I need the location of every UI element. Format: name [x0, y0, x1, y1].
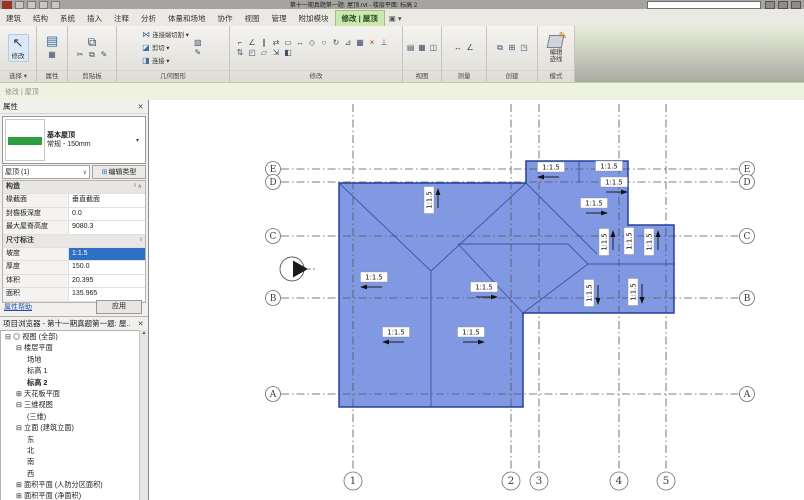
slope-label[interactable]: 1:1.5 — [600, 233, 608, 250]
tab-8[interactable]: 视图 — [239, 11, 266, 26]
grid-bubble-label-B: B — [270, 294, 277, 304]
panel-view: ▤▦◫ 视图 — [403, 26, 442, 82]
create-icon-0[interactable]: ⧉ — [494, 43, 506, 53]
browser-scrollbar[interactable]: ▲ — [139, 330, 148, 500]
panel-label-select[interactable]: 选择 ▾ — [0, 70, 36, 82]
panel-create: ⧉⊞◳ 创建 — [487, 26, 538, 82]
edit-footprint-button[interactable]: 编辑 迹线 — [550, 49, 563, 63]
search-input[interactable] — [647, 1, 761, 9]
clipboard-small-icons: ✂⧉✎ — [74, 50, 110, 60]
geometry-button-1[interactable]: ◪ 剪切 ▾ — [142, 42, 189, 55]
slope-label[interactable]: 1:1.5 — [365, 274, 382, 282]
slope-label[interactable]: 1:1.5 — [645, 233, 653, 250]
type-selector[interactable]: 基本屋顶 常规 - 150mm ▾ — [2, 116, 146, 164]
modify-icon-9[interactable]: ⊿ — [342, 38, 354, 48]
properties-title: 属性 — [3, 101, 136, 112]
type-desc: 常规 - 150mm — [47, 140, 136, 149]
modify-icon-0[interactable]: ⌐ — [234, 38, 246, 48]
modify-icon-10[interactable]: ▦ — [354, 38, 366, 48]
modify-icon-3[interactable]: ⇄ — [270, 38, 282, 48]
properties-close-icon[interactable]: ✕ — [136, 103, 145, 111]
clipboard-icon-2[interactable]: ✎ — [98, 50, 110, 60]
modify-icon-11[interactable]: × — [366, 38, 378, 48]
slope-label[interactable]: 1:1.5 — [625, 232, 633, 249]
modify-icon-15[interactable]: ▱ — [258, 48, 270, 58]
prop-value[interactable]: 20.395 — [69, 275, 145, 287]
slope-label[interactable]: 1:1.5 — [585, 200, 602, 208]
panel-label-clipboard[interactable]: 剪贴板 — [68, 70, 116, 82]
modify-icon-16[interactable]: ⇲ — [270, 48, 282, 58]
measure-icon-1[interactable]: ∠ — [464, 43, 476, 53]
clipboard-icon-0[interactable]: ✂ — [74, 50, 86, 60]
view-icon-0[interactable]: ▤ — [405, 43, 416, 53]
modify-icon-13[interactable]: ⇅ — [234, 48, 246, 58]
tree-item-7[interactable]: (三维) — [1, 411, 147, 422]
tab-contextual-modify-roof[interactable]: 修改 | 屋顶 — [335, 10, 385, 26]
prop-row-椽截面[interactable]: 椽截面垂直截面 — [3, 194, 145, 207]
tree-item-9[interactable]: 东 — [1, 434, 147, 445]
grid-bubble-label-4: 4 — [616, 475, 623, 487]
create-icon-1[interactable]: ⊞ — [506, 43, 518, 53]
modify-button[interactable]: ↖ 修改 — [8, 34, 29, 62]
prop-row-最大屋脊高度[interactable]: 最大屋脊高度9080.3 — [3, 221, 145, 234]
grid-bubble-label-D: D — [269, 178, 276, 188]
app-logo-icon[interactable] — [2, 1, 12, 9]
modify-icon-12[interactable]: ⊥ — [378, 38, 390, 48]
type-properties-icon[interactable]: ▦ — [46, 50, 58, 60]
panel-label-create[interactable]: 创建 — [487, 70, 537, 82]
modify-icon-7[interactable]: ○ — [318, 38, 330, 48]
modify-icon-4[interactable]: ▭ — [282, 38, 294, 48]
tree-item-5[interactable]: ⊞ 天花板平面 — [1, 388, 147, 399]
measure-icon-0[interactable]: ↔ — [452, 43, 464, 53]
tab-expander-icon[interactable]: ▣ ▾ — [385, 11, 406, 26]
combo-arrow-icon: ∨ — [83, 169, 87, 176]
section-header-0[interactable]: 构造² ∧ — [3, 181, 145, 194]
modify-icon-8[interactable]: ↻ — [330, 38, 342, 48]
slope-label[interactable]: 1:1.5 — [475, 284, 492, 292]
tree-item-12[interactable]: 西 — [1, 468, 147, 479]
print-icon[interactable] — [51, 1, 60, 9]
prop-row-厚度[interactable]: 厚度150.0 — [3, 261, 145, 274]
panel-label-geometry[interactable]: 几何图形 — [117, 70, 229, 82]
grid-bubble-label-C: C — [744, 232, 751, 242]
panel-label-properties[interactable]: 属性 — [37, 70, 67, 82]
geometry-button-2[interactable]: ◨ 连接 ▾ — [142, 55, 189, 68]
tab-5[interactable]: 分析 — [135, 11, 162, 26]
grid-bubble-label-A: A — [269, 390, 277, 400]
grid-bubble-label-B: B — [744, 294, 751, 304]
slope-label[interactable]: 1:1.5 — [629, 283, 637, 300]
grid-bubble-label-C: C — [270, 232, 277, 242]
prop-row-体积[interactable]: 体积20.395 — [3, 275, 145, 288]
project-browser: 项目浏览器 - 第十一期真题第一题: 屋.. ✕ ⊟ ◎ 视图 (全部)⊟ 楼层… — [0, 317, 148, 500]
panel-measure: ↔∠ 测量 — [442, 26, 487, 82]
prop-row-坡度[interactable]: 坡度1:1.5 — [3, 248, 145, 261]
browser-tree: ⊟ ◎ 视图 (全部)⊟ 楼层平面场地标高 1标高 2⊞ 天花板平面⊟ 三维视图… — [0, 330, 148, 500]
save-icon[interactable] — [15, 1, 24, 9]
type-name: 基本屋顶 — [47, 131, 136, 140]
properties-table: 构造² ∧椽截面垂直截面封檐板深度0.0最大屋脊高度9080.3尺寸标注²坡度1… — [2, 180, 146, 303]
prop-row-封檐板深度[interactable]: 封檐板深度0.0 — [3, 208, 145, 221]
modify-icon-6[interactable]: ◇ — [306, 38, 318, 48]
help-icon[interactable] — [778, 1, 788, 9]
grid-bubble-label-3: 3 — [536, 475, 543, 487]
panel-label-view[interactable]: 视图 — [403, 70, 441, 82]
grid-bubble-label-1: 1 — [350, 475, 357, 487]
tree-item-3[interactable]: 标高 1 — [1, 365, 147, 376]
properties-palette: 属性 ✕ 基本屋顶 常规 - 150mm ▾ 屋顶 (1) ∨ ⊞ 编辑类型 — [0, 100, 148, 317]
grid-bubble-label-2: 2 — [508, 475, 515, 487]
panel-mode: ✎ 编辑 迹线 模式 — [538, 26, 575, 82]
prop-value[interactable]: 1:1.5 — [69, 248, 145, 260]
tree-item-1[interactable]: ⊟ 楼层平面 — [1, 342, 147, 353]
panel-modify: ⌐∠∥⇄▭↔◇○↻⊿▦×⊥⇅◰▱⇲◧ 修改 — [230, 26, 403, 82]
cursor-icon: ↖ — [13, 36, 24, 50]
prop-value[interactable]: 150.0 — [69, 261, 145, 273]
slope-label[interactable]: 1:1.5 — [600, 163, 617, 171]
grid-bubble-label-A: A — [743, 390, 751, 400]
modify-icon-2[interactable]: ∥ — [258, 38, 270, 48]
browser-title: 项目浏览器 - 第十一期真题第一题: 屋.. — [3, 318, 136, 329]
drawing-area[interactable]: 12345EEDDCCBBAA1:1.51:1.51:1.51:1.51:1.5… — [148, 100, 804, 500]
geometry-icon-2: ◨ — [142, 56, 152, 65]
modify-icon-5[interactable]: ↔ — [294, 38, 306, 48]
tab-2[interactable]: 系统 — [54, 11, 81, 26]
modify-tools: ⌐∠∥⇄▭↔◇○↻⊿▦×⊥⇅◰▱⇲◧ — [234, 38, 398, 58]
sidebar: 属性 ✕ 基本屋顶 常规 - 150mm ▾ 屋顶 (1) ∨ ⊞ 编辑类型 — [0, 100, 148, 500]
browser-close-icon[interactable]: ✕ — [136, 320, 145, 328]
scroll-up-icon[interactable]: ▲ — [142, 330, 147, 336]
type-preview — [5, 119, 45, 161]
tab-9[interactable]: 管理 — [266, 11, 293, 26]
tab-1[interactable]: 结构 — [27, 11, 54, 26]
tree-item-13[interactable]: ⊞ 面积平面 (人防分区面积) — [1, 479, 147, 490]
tree-item-10[interactable]: 北 — [1, 445, 147, 456]
slope-label[interactable]: 1:1.5 — [387, 329, 404, 337]
geometry-icon-0: ⋈ — [142, 30, 152, 39]
prop-value[interactable]: 垂直截面 — [69, 194, 145, 206]
minimize-icon[interactable] — [791, 1, 801, 9]
redo-icon[interactable] — [39, 1, 48, 9]
tab-4[interactable]: 注释 — [108, 11, 135, 26]
options-bar: 修改 | 屋顶 — [0, 82, 804, 102]
apply-button[interactable]: 应用 — [96, 300, 142, 314]
ribbon-tab-bar: 建筑结构系统插入注释分析体量和场地协作视图管理附加模块修改 | 屋顶▣ ▾ — [0, 9, 804, 27]
tree-item-6[interactable]: ⊟ 三维视图 — [1, 399, 147, 410]
panel-properties: ▤ ▦ 属性 — [37, 26, 68, 82]
paste-icon[interactable]: ⧉ — [86, 37, 98, 50]
create-icon-2[interactable]: ◳ — [518, 43, 530, 53]
panel-label-mode[interactable]: 模式 — [538, 70, 574, 82]
window-title: 第十一期真题第一题: 屋顶.rvt - 楼层平面: 标高 2 — [60, 0, 647, 9]
tree-item-11[interactable]: 南 — [1, 456, 147, 467]
properties-palette-icon[interactable]: ▤ — [46, 36, 58, 50]
grid-bubble-label-E: E — [744, 165, 751, 175]
tree-item-0[interactable]: ⊟ ◎ 视图 (全部) — [1, 331, 147, 342]
ribbon: ↖ 修改 选择 ▾ ▤ ▦ 属性 ⧉ ✂⧉✎ 剪贴板 ⋈ 连接端切割 ▾◪ 剪切… — [0, 26, 804, 82]
options-bar-label: 修改 | 屋顶 — [5, 87, 39, 97]
slope-label[interactable]: 1:1.5 — [585, 284, 593, 301]
properties-help-link[interactable]: 属性帮助 — [4, 302, 32, 312]
clipboard-icon-1[interactable]: ⧉ — [86, 50, 98, 60]
grid-bubble-label-D: D — [743, 178, 750, 188]
geometry-buttons: ⋈ 连接端切割 ▾◪ 剪切 ▾◨ 连接 ▾ — [142, 29, 189, 68]
view-icon-2[interactable]: ◫ — [428, 43, 439, 53]
signin-icon[interactable] — [765, 1, 775, 9]
panel-clipboard: ⧉ ✂⧉✎ 剪贴板 — [68, 26, 117, 82]
tab-10[interactable]: 附加模块 — [293, 11, 335, 26]
ribbon-empty-area — [575, 26, 804, 82]
view-icon-1[interactable]: ▦ — [416, 43, 427, 53]
tab-3[interactable]: 插入 — [81, 11, 108, 26]
panel-label-measure[interactable]: 测量 — [442, 70, 486, 82]
grid-bubble-label-5: 5 — [663, 475, 670, 487]
tree-item-4[interactable]: 标高 2 — [1, 377, 147, 388]
modify-icon-1[interactable]: ∠ — [246, 38, 258, 48]
section-header-1[interactable]: 尺寸标注² — [3, 235, 145, 248]
roof-selected[interactable] — [339, 161, 674, 407]
tab-6[interactable]: 体量和场地 — [162, 11, 212, 26]
tree-item-14[interactable]: ⊞ 面积平面 (净面积) — [1, 490, 147, 500]
slope-label[interactable]: 1:1.5 — [462, 329, 479, 337]
grid-bubble-label-E: E — [270, 165, 277, 175]
tree-item-2[interactable]: 场地 — [1, 354, 147, 365]
modify-icon-14[interactable]: ◰ — [246, 48, 258, 58]
roof-plan-view: 12345EEDDCCBBAA1:1.51:1.51:1.51:1.51:1.5… — [149, 100, 804, 500]
tab-0[interactable]: 建筑 — [0, 11, 27, 26]
slope-label[interactable]: 1:1.5 — [605, 179, 622, 187]
title-bar: 第十一期真题第一题: 屋顶.rvt - 楼层平面: 标高 2 — [0, 0, 804, 9]
paint-icon[interactable]: ▧ — [192, 38, 204, 48]
slope-label[interactable]: 1:1.5 — [542, 164, 559, 172]
modify-icon-17[interactable]: ◧ — [282, 48, 294, 58]
tree-item-8[interactable]: ⊟ 立面 (建筑立面) — [1, 422, 147, 433]
undo-icon[interactable] — [27, 1, 36, 9]
edit-type-button[interactable]: ⊞ 编辑类型 — [92, 165, 146, 179]
prop-value[interactable]: 9080.3 — [69, 221, 145, 233]
geometry-button-0[interactable]: ⋈ 连接端切割 ▾ — [142, 29, 189, 42]
edit-type-icon: ⊞ — [102, 168, 108, 176]
element-filter-combo[interactable]: 屋顶 (1) ∨ — [2, 165, 90, 179]
type-dropdown-icon[interactable]: ▾ — [136, 137, 145, 144]
tab-7[interactable]: 协作 — [212, 11, 239, 26]
slope-label[interactable]: 1:1.5 — [425, 191, 433, 208]
panel-select: ↖ 修改 选择 ▾ — [0, 26, 37, 82]
geometry-icon-1: ◪ — [142, 43, 152, 52]
demolish-icon[interactable]: ✎ — [192, 48, 204, 58]
edit-footprint-icon: ✎ — [547, 33, 565, 49]
revit-window: 第十一期真题第一题: 屋顶.rvt - 楼层平面: 标高 2 建筑结构系统插入注… — [0, 0, 804, 500]
panel-label-modify[interactable]: 修改 — [230, 70, 402, 82]
prop-value[interactable]: 0.0 — [69, 208, 145, 220]
panel-geometry: ⋈ 连接端切割 ▾◪ 剪切 ▾◨ 连接 ▾ ▧ ✎ 几何图形 — [117, 26, 230, 82]
